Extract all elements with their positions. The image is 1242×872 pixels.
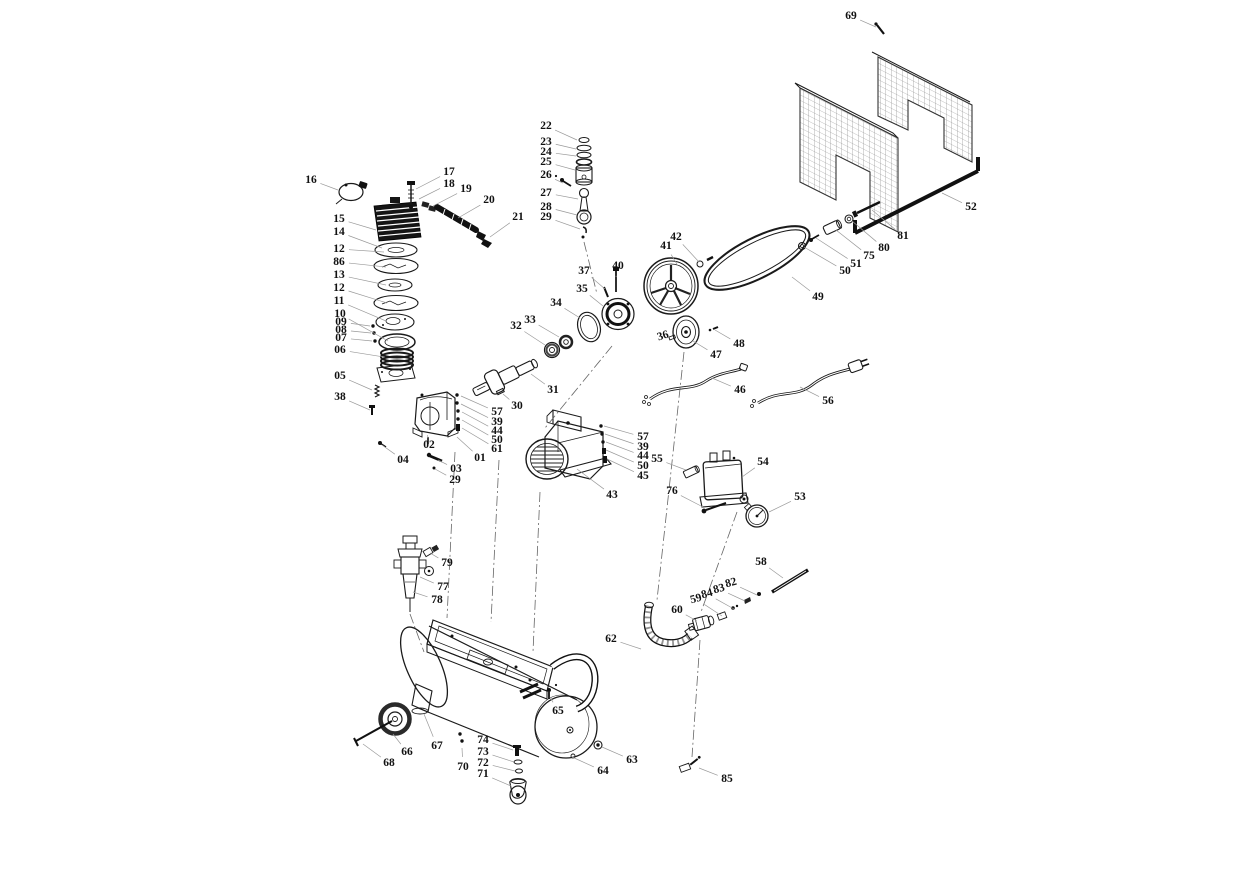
part-label-04: 04 [397,454,409,466]
leader-line-85 [699,768,718,775]
leader-line-72 [493,765,515,771]
part-label-47: 47 [710,349,722,361]
leader-line-43 [577,469,604,489]
leader-line-22 [555,130,577,140]
part-label-66: 66 [401,746,413,758]
part-label-48: 48 [733,338,745,350]
leader-line-47 [693,341,707,350]
part-label-29: 29 [449,474,461,486]
leader-line-58 [769,568,783,578]
leader-line-54 [742,468,755,477]
leader-line-11 [348,305,386,321]
leader-line-12 [349,250,384,252]
part-label-62: 62 [605,633,617,645]
part-label-19: 19 [460,183,472,195]
leader-line-68 [363,744,381,757]
leader-line-61 [462,428,488,444]
leader-line-08 [351,331,371,333]
part-label-37: 37 [578,265,590,277]
part-label-45: 45 [637,470,649,482]
motor [526,410,611,479]
part-label-82: 82 [724,576,738,591]
leader-line-74 [492,743,513,750]
pressure-gauge [744,504,768,527]
part-label-63: 63 [626,754,638,766]
part-label-79: 79 [441,557,453,569]
part-label-56: 56 [822,395,834,407]
leader-line-79 [430,553,438,558]
part-label-83: 83 [712,582,726,597]
leader-line-55 [666,463,686,470]
leader-line-42 [683,244,699,262]
part-label-70: 70 [457,761,469,773]
crank-parts [469,267,634,402]
leader-line-64 [572,757,594,767]
part-label-36: 36 [656,328,671,343]
leader-line-73 [493,755,514,762]
leader-line-32 [524,331,545,345]
leader-line-69 [860,20,876,27]
leader-line-49 [792,277,810,291]
part-label-75: 75 [863,250,875,262]
part-label-60: 60 [671,604,683,616]
leader-line-03 [438,460,447,465]
leader-line-34 [564,308,580,318]
part-label-15: 15 [333,213,345,225]
part-label-29: 29 [540,211,552,223]
leader-line-17 [416,177,440,189]
part-label-02: 02 [423,439,435,451]
leader-line-06 [350,352,384,357]
guard-screw [874,22,884,34]
leader-line-67 [424,714,433,737]
part-label-31: 31 [547,384,559,396]
leader-line-78 [413,592,428,597]
part-label-67: 67 [431,740,443,752]
part-label-78: 78 [431,594,443,606]
leader-line-04 [382,445,395,454]
leader-line-59 [704,604,722,616]
part-label-07: 07 [335,332,347,344]
part-label-12: 12 [333,243,345,255]
part-label-53: 53 [794,491,806,503]
leader-line-01 [457,437,473,451]
valve-stack [369,243,418,415]
drive-belt [696,214,818,302]
leader-line-24 [556,153,576,156]
part-label-46: 46 [734,384,746,396]
leader-line-44 [606,442,634,452]
part-label-21: 21 [512,211,524,223]
part-label-58: 58 [755,556,767,568]
leader-line-45 [607,459,634,472]
part-label-81: 81 [897,230,909,242]
part-label-05: 05 [334,370,346,382]
part-label-51: 51 [850,258,862,270]
leader-line-63 [602,747,623,756]
wheel-parts [354,705,526,805]
part-label-20: 20 [483,194,495,206]
leader-line-25 [556,165,575,170]
part-label-55: 55 [651,453,663,465]
leader-line-51 [816,238,848,259]
leader-line-35 [590,295,603,306]
part-label-85: 85 [721,773,733,785]
leader-line-50 [804,247,836,266]
part-label-26: 26 [540,169,552,181]
motor-pulley [669,316,718,348]
leader-line-37 [592,278,605,289]
part-label-34: 34 [550,297,562,309]
part-label-61: 61 [491,443,503,455]
part-label-65: 65 [552,705,564,717]
leader-line-05 [349,380,372,390]
leader-line-71 [492,778,511,786]
leader-line-38 [349,401,370,410]
part-label-49: 49 [812,291,824,303]
leader-line-44 [462,412,488,426]
part-label-71: 71 [477,768,489,780]
part-label-74: 74 [477,734,489,746]
leader-line-10 [349,319,388,341]
part-label-12: 12 [333,282,345,294]
leader-line-60 [686,615,697,621]
crankcase-parts [378,392,460,470]
leader-line-30 [503,394,509,399]
leader-line-83 [728,593,745,601]
part-label-22: 22 [540,120,552,132]
part-label-35: 35 [576,283,588,295]
cable-46 [643,363,748,405]
part-label-54: 54 [757,456,769,468]
part-label-69: 69 [845,10,857,22]
leader-line-07 [351,339,372,341]
leader-line-84 [716,599,734,609]
leader-line-33 [539,325,559,337]
leader-line-23 [556,144,576,149]
leader-line-86 [349,263,386,267]
part-label-76: 76 [666,485,678,497]
part-label-41: 41 [660,240,672,252]
leader-line-53 [769,501,791,512]
leader-line-20 [458,205,480,218]
part-label-50: 50 [839,265,851,277]
flywheel [644,257,713,314]
leader-line-57 [604,426,633,434]
leader-line-39 [605,434,634,444]
part-label-30: 30 [511,400,523,412]
leader-line-52 [942,193,962,203]
leader-line-29 [435,469,446,475]
piston-parts [555,138,592,239]
part-label-11: 11 [334,295,345,307]
part-label-25: 25 [540,156,552,168]
part-label-27: 27 [540,187,552,199]
part-label-06: 06 [334,344,346,356]
leader-line-29 [555,220,580,229]
belt-guard [795,52,978,233]
leader-line-19 [433,194,457,206]
leader-line-15 [349,222,376,230]
leader-line-82 [740,587,757,595]
leader-line-16 [320,183,338,190]
part-label-18: 18 [443,178,455,190]
exploded-diagram: 1615141286131211100908070605381718192021… [0,0,1242,872]
part-label-80: 80 [878,242,890,254]
leader-line-13 [349,277,386,285]
part-label-32: 32 [510,320,522,332]
part-label-38: 38 [334,391,346,403]
leader-line-48 [715,330,730,339]
leader-line-14 [348,235,382,248]
part-label-52: 52 [965,201,977,213]
part-label-40: 40 [612,260,624,272]
part-label-42: 42 [670,231,682,243]
part-label-77: 77 [437,581,449,593]
part-label-86: 86 [333,256,345,268]
leader-line-56 [800,387,819,397]
leader-line-77 [420,577,434,583]
part-label-13: 13 [333,269,345,281]
part-label-43: 43 [606,489,618,501]
cable-56 [751,357,870,408]
tank [391,620,602,758]
leader-line-46 [712,378,731,386]
part-label-68: 68 [383,757,395,769]
part-label-16: 16 [305,174,317,186]
plumbing-parts [645,570,809,772]
leader-line-62 [620,642,641,649]
leader-line-21 [490,223,510,237]
part-label-17: 17 [443,166,455,178]
leader-line-28 [556,209,577,215]
leader-line-27 [556,195,578,199]
diagram-page: 1615141286131211100908070605381718192021… [0,0,1242,872]
part-label-14: 14 [333,226,345,238]
leader-line-31 [531,374,545,384]
part-label-01: 01 [474,452,486,464]
part-label-64: 64 [597,765,609,777]
part-label-33: 33 [524,314,536,326]
leader-line-50 [462,420,488,435]
leader-line-18 [419,188,440,199]
pressure-switch [683,451,748,513]
